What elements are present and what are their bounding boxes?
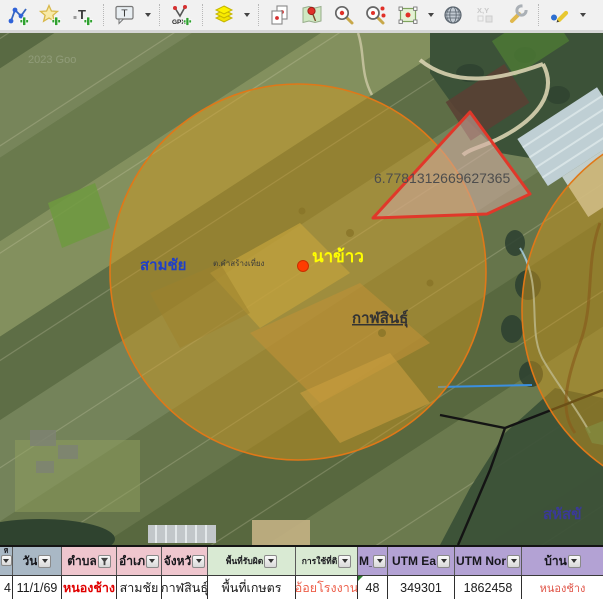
chevron-down-icon: [145, 13, 151, 17]
filter-dropdown-button[interactable]: [1, 555, 12, 566]
filter-dropdown-button[interactable]: [568, 555, 581, 568]
chevron-down-icon: [3, 559, 9, 563]
cell-landuse[interactable]: อ้อยโรงงาน: [296, 576, 358, 599]
filter-active-dropdown-button[interactable]: [98, 555, 111, 568]
district-label-left: สามชัย: [140, 257, 186, 274]
attribute-table: ที่ วัน ตำบล อำเภ จังหวั: [0, 545, 603, 600]
filter-dropdown-button[interactable]: [38, 555, 51, 568]
web-globe-button[interactable]: [438, 2, 468, 29]
web-globe-icon: [442, 4, 464, 26]
column-header-utm-easting: UTM Ea: [388, 547, 455, 575]
zoom-to-point-button[interactable]: [329, 2, 359, 29]
add-star-feature-icon: [39, 4, 61, 26]
settings-wrench-icon: [506, 4, 528, 26]
layers-icon: [213, 4, 235, 26]
chevron-down-icon: [511, 559, 517, 563]
cell-date[interactable]: 11/1/69: [13, 576, 62, 599]
coordinate-capture-icon: X,Y: [474, 4, 496, 26]
map-canvas[interactable]: 2023 Goo 6.7781312669627365 สามชัย ต.คำส…: [0, 33, 603, 545]
subdistrict-label: ต.คำสร้างเที่ยง: [213, 257, 265, 268]
chevron-down-icon: [428, 13, 434, 17]
layers-button[interactable]: [209, 2, 239, 29]
column-header-province: จังหวั: [162, 547, 208, 575]
filter-dropdown-button[interactable]: [507, 555, 520, 568]
table-row[interactable]: 4 11/1/69 หนองช้าง สามชัย กาฬสินธุ์ พื้น…: [0, 576, 603, 599]
column-header-village: บ้าน: [522, 547, 603, 575]
pin-location-icon: [301, 4, 323, 26]
greenhouse: [148, 525, 216, 543]
filter-dropdown-button[interactable]: [338, 555, 351, 568]
add-gpx-button[interactable]: GPX: [166, 2, 196, 29]
district-label-right: สหัสขั: [543, 506, 582, 523]
column-header-subdistrict: ตำบล: [62, 547, 117, 575]
zoom-to-points-button[interactable]: [361, 2, 391, 29]
toolbar-separator: [159, 4, 160, 26]
measurement-label: 6.7781312669627365: [374, 170, 510, 186]
column-header-landuse: การใช้ที่ดิ: [296, 547, 358, 575]
chevron-down-icon: [377, 559, 383, 563]
gis-application-window: T T GPX: [0, 0, 603, 600]
add-text-feature-button[interactable]: T: [67, 2, 97, 29]
add-line-feature-icon: [7, 4, 29, 26]
cell-m-zone[interactable]: 48: [358, 576, 388, 599]
copy-features-icon: [269, 4, 291, 26]
column-header-responsible-area: พื้นที่รับผิด: [208, 547, 296, 575]
toolbar-separator: [103, 4, 104, 26]
column-header-date: วัน: [13, 547, 62, 575]
digitize-pen-dropdown[interactable]: [577, 2, 588, 29]
toolbar-separator: [538, 4, 539, 26]
svg-text:T: T: [121, 8, 128, 20]
column-header-index: ที่: [0, 547, 13, 575]
chevron-down-icon: [149, 559, 155, 563]
point-marker[interactable]: [298, 261, 309, 272]
chevron-down-icon: [441, 559, 447, 563]
filter-dropdown-button[interactable]: [373, 555, 386, 568]
coordinate-capture-button[interactable]: X,Y: [470, 2, 500, 29]
toolbar: T T GPX: [0, 0, 603, 33]
chevron-down-icon: [580, 13, 586, 17]
filter-dropdown-button[interactable]: [264, 555, 277, 568]
toolbar-separator: [202, 4, 203, 26]
chevron-down-icon: [244, 13, 250, 17]
digitize-pen-icon: [549, 4, 571, 26]
chevron-down-icon: [196, 559, 202, 563]
add-gpx-icon: GPX: [170, 4, 192, 26]
imagery-watermark: 2023 Goo: [28, 54, 76, 66]
digitize-pen-button[interactable]: [545, 2, 575, 29]
zoom-to-point-icon: [333, 4, 355, 26]
cell-responsible-area[interactable]: พื้นที่เกษตร: [208, 576, 296, 599]
filter-dropdown-button[interactable]: [146, 555, 159, 568]
cell-subdistrict[interactable]: หนองช้าง: [62, 576, 117, 599]
toolbar-separator: [258, 4, 259, 26]
cell-province[interactable]: กาฬสินธุ์: [162, 576, 208, 599]
column-header-utm-northing: UTM Nor: [455, 547, 522, 575]
province-label: กาฬสินธุ์: [352, 309, 408, 328]
column-header-district: อำเภ: [117, 547, 162, 575]
copy-features-button[interactable]: [265, 2, 295, 29]
text-annotation-icon: T: [114, 4, 136, 26]
settings-wrench-button[interactable]: [502, 2, 532, 29]
text-annotation-dropdown[interactable]: [142, 2, 153, 29]
chevron-down-icon: [268, 559, 274, 563]
zoom-to-points-icon: [365, 4, 387, 26]
add-star-feature-button[interactable]: [35, 2, 65, 29]
add-line-feature-button[interactable]: [3, 2, 33, 29]
cell-utm-easting[interactable]: 349301: [388, 576, 455, 599]
chevron-down-icon: [571, 559, 577, 563]
zoom-to-extent-dropdown[interactable]: [425, 2, 436, 29]
zoom-to-extent-button[interactable]: [393, 2, 423, 29]
table-header-row: ที่ วัน ตำบล อำเภ จังหวั: [0, 547, 603, 576]
chevron-down-icon: [42, 559, 48, 563]
cell-index[interactable]: 4: [0, 576, 13, 599]
cell-utm-northing[interactable]: 1862458: [455, 576, 522, 599]
column-header-m-zone: M_: [358, 547, 388, 575]
zoom-to-extent-icon: [397, 4, 419, 26]
layers-dropdown[interactable]: [241, 2, 252, 29]
text-annotation-button[interactable]: T: [110, 2, 140, 29]
filter-dropdown-button[interactable]: [437, 555, 450, 568]
cell-village[interactable]: หนองช้าง: [522, 576, 603, 599]
chevron-down-icon: [342, 559, 348, 563]
add-text-feature-icon: T: [71, 4, 93, 26]
point-label: นาข้าว: [312, 247, 364, 266]
filter-dropdown-button[interactable]: [192, 555, 205, 568]
svg-text:X,Y: X,Y: [477, 6, 489, 15]
cell-corner-flag: [358, 576, 363, 581]
cell-district[interactable]: สามชัย: [117, 576, 162, 599]
pin-location-button[interactable]: [297, 2, 327, 29]
filter-funnel-icon: [100, 557, 109, 566]
